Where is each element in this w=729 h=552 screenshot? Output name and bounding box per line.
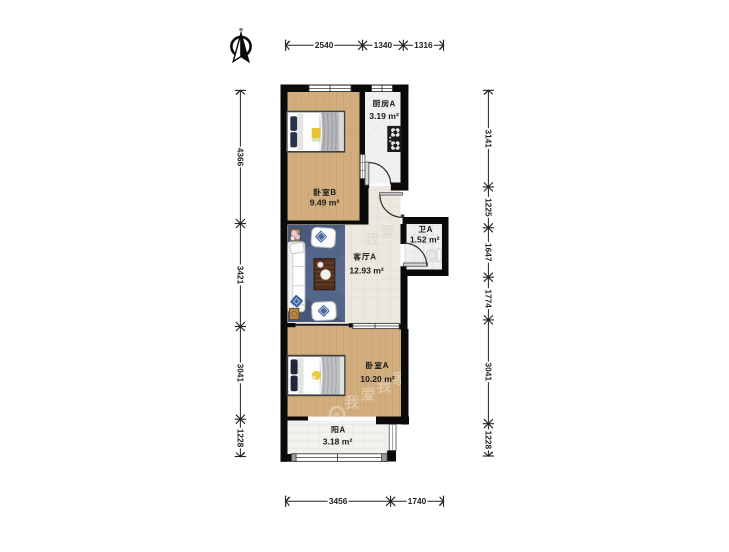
svg-text:A: A bbox=[339, 425, 345, 434]
svg-text:1228: 1228 bbox=[235, 429, 245, 448]
svg-text:3.18 m²: 3.18 m² bbox=[323, 436, 353, 446]
svg-text:1225: 1225 bbox=[483, 198, 493, 217]
svg-text:A: A bbox=[390, 99, 396, 108]
svg-text:9.49 m²: 9.49 m² bbox=[310, 197, 340, 207]
svg-text:3041: 3041 bbox=[483, 363, 493, 382]
svg-text:3141: 3141 bbox=[483, 129, 493, 148]
svg-text:N: N bbox=[239, 27, 243, 32]
svg-text:1.52 m²: 1.52 m² bbox=[410, 234, 440, 244]
svg-text:2540: 2540 bbox=[315, 40, 334, 50]
svg-text:A: A bbox=[383, 361, 389, 370]
svg-text:1340: 1340 bbox=[374, 40, 393, 50]
svg-text:1740: 1740 bbox=[408, 496, 427, 506]
svg-text:3.19 m²: 3.19 m² bbox=[369, 111, 399, 121]
svg-text:1228: 1228 bbox=[483, 431, 493, 450]
svg-text:3041: 3041 bbox=[235, 364, 245, 383]
svg-text:1316: 1316 bbox=[414, 40, 433, 50]
svg-text:3456: 3456 bbox=[329, 496, 348, 506]
svg-text:B: B bbox=[330, 188, 336, 197]
svg-text:10.20 m²: 10.20 m² bbox=[360, 374, 395, 384]
svg-text:4366: 4366 bbox=[235, 148, 245, 167]
svg-text:A: A bbox=[427, 225, 433, 234]
svg-text:12.93 m²: 12.93 m² bbox=[349, 266, 384, 276]
svg-text:1774: 1774 bbox=[483, 289, 493, 308]
svg-text:1647: 1647 bbox=[483, 243, 493, 262]
svg-text:A: A bbox=[370, 253, 376, 262]
svg-text:3421: 3421 bbox=[235, 266, 245, 285]
